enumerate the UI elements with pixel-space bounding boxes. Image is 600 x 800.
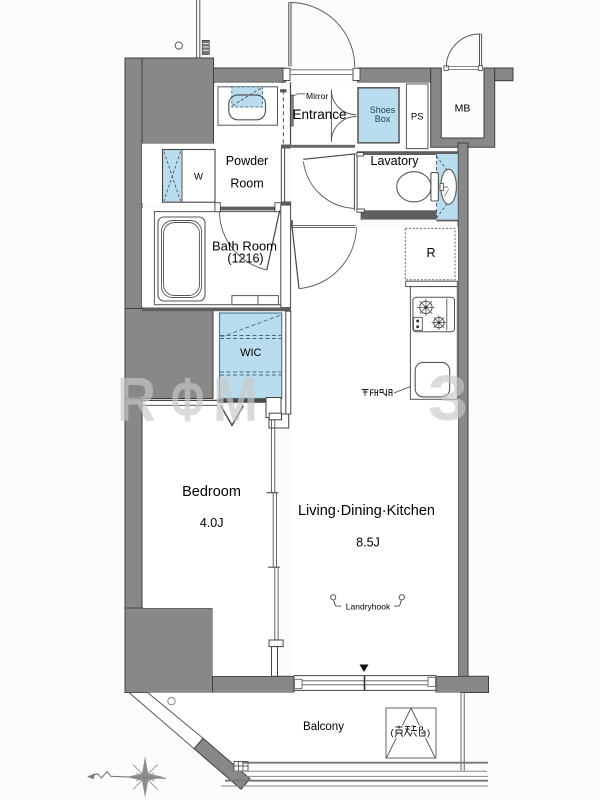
svg-text:Room: Room xyxy=(230,177,263,191)
svg-text:Box: Box xyxy=(375,114,391,124)
svg-text:): ) xyxy=(427,728,430,739)
svg-text:PS: PS xyxy=(411,112,424,123)
svg-text:Balcony: Balcony xyxy=(303,721,344,733)
svg-text:3: 3 xyxy=(428,362,468,434)
svg-text:Living·Dining·Kitchen: Living·Dining·Kitchen xyxy=(298,503,435,519)
svg-text:MB: MB xyxy=(455,103,471,115)
svg-text:R: R xyxy=(426,246,435,260)
svg-text:M: M xyxy=(213,366,258,435)
svg-text:Entrance: Entrance xyxy=(292,107,346,122)
svg-text:W: W xyxy=(194,172,203,183)
svg-text:Powder: Powder xyxy=(226,154,268,168)
svg-text:Landryhook: Landryhook xyxy=(346,602,391,612)
svg-text:R: R xyxy=(117,366,156,435)
svg-text:Mirror: Mirror xyxy=(306,91,328,101)
svg-text:(1216): (1216) xyxy=(227,252,263,266)
svg-text:Bedroom: Bedroom xyxy=(182,484,241,500)
svg-text:8.5J: 8.5J xyxy=(356,536,380,550)
svg-text:WIC: WIC xyxy=(240,347,261,359)
svg-text:4.0J: 4.0J xyxy=(200,516,224,530)
svg-text:Lavatory: Lavatory xyxy=(371,154,420,168)
svg-text:Φ: Φ xyxy=(171,366,204,435)
